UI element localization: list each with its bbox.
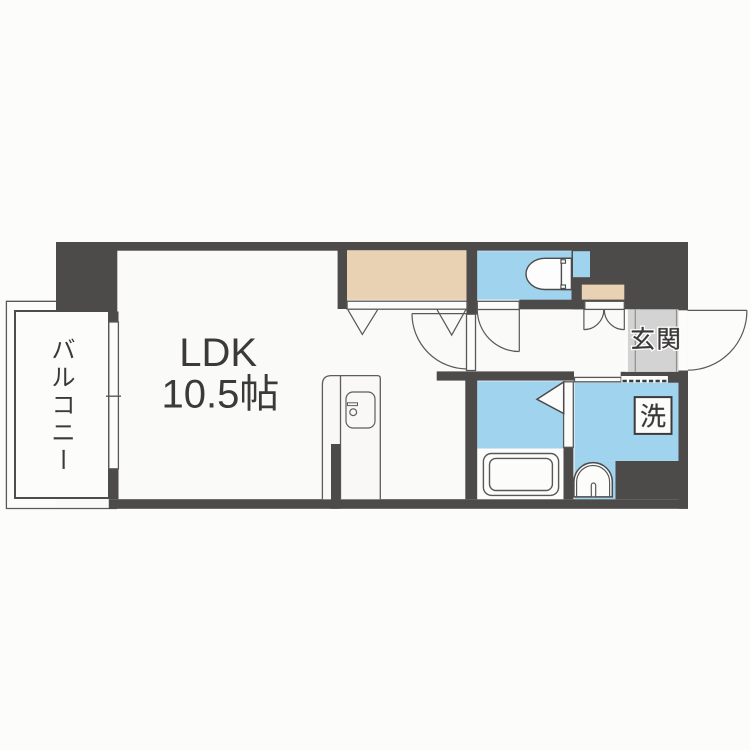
svg-text:10.5: 10.5 bbox=[162, 373, 240, 417]
svg-text:LDK: LDK bbox=[179, 331, 257, 375]
